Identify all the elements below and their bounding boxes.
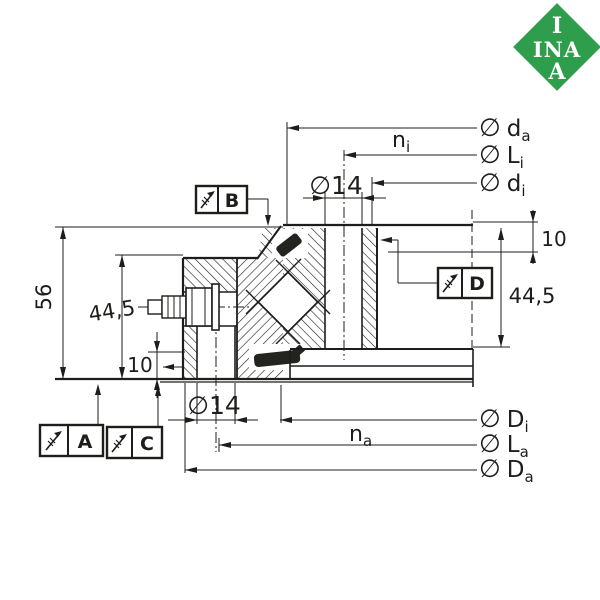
dim-10-left: 10 [127,353,152,377]
datum-B-letter: B [225,190,239,212]
ina-logo-row1: I [552,13,562,39]
technical-drawing-canvas: 56 44,5 10 ∅14 ni [0,0,600,600]
dim-phi14-bottom: ∅14 [187,391,241,420]
dim-44-5-right: 44,5 [509,284,556,308]
datum-C-letter: C [140,433,154,455]
bearing-section-drawing: 56 44,5 10 ∅14 ni [0,0,600,600]
ina-logo-row3: A [547,59,566,85]
dim-10-right: 10 [541,227,566,251]
dim-phi14-top: ∅14 [309,171,363,200]
datum-A-letter: A [78,431,93,453]
dim-56: 56 [32,284,56,311]
datum-D-letter: D [469,273,485,295]
